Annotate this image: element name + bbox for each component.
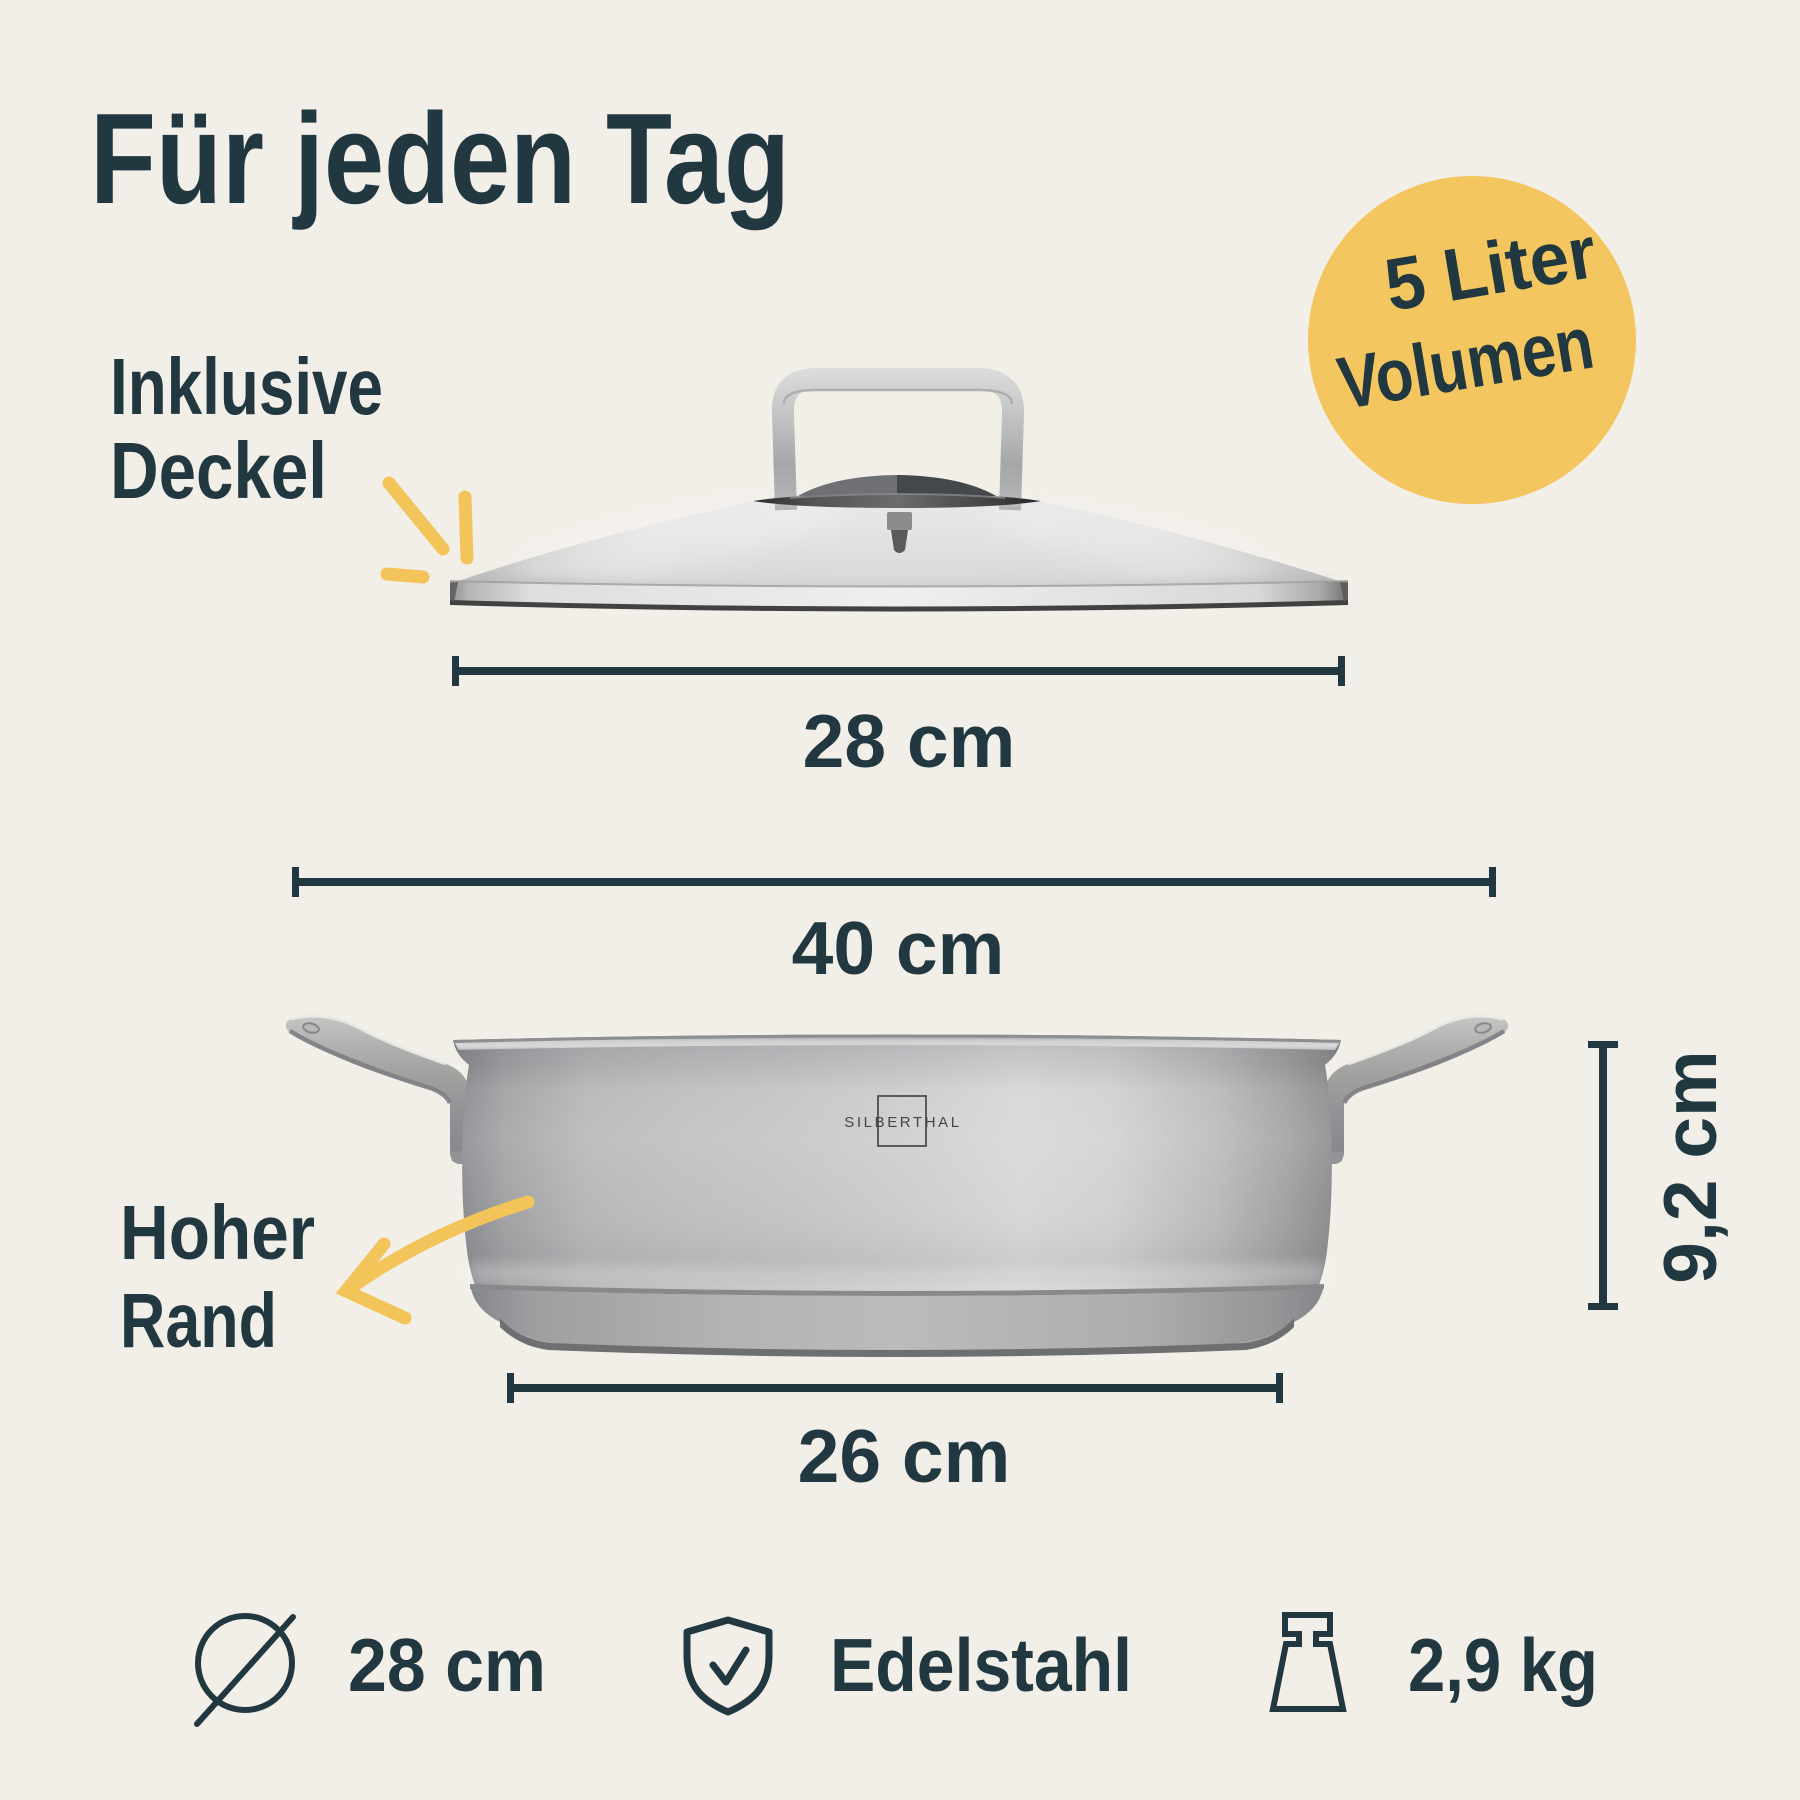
svg-text:28 cm: 28 cm (803, 699, 1016, 783)
svg-text:Edelstahl: Edelstahl (830, 1623, 1132, 1707)
svg-text:Deckel: Deckel (110, 426, 327, 515)
svg-text:Für jeden Tag: Für jeden Tag (90, 87, 790, 231)
svg-text:Inklusive: Inklusive (110, 342, 383, 431)
svg-text:26 cm: 26 cm (798, 1414, 1011, 1498)
svg-text:Hoher: Hoher (120, 1190, 315, 1276)
svg-text:9,2 cm: 9,2 cm (1648, 1050, 1732, 1284)
svg-text:2,9 kg: 2,9 kg (1408, 1623, 1598, 1707)
svg-text:28 cm: 28 cm (348, 1623, 546, 1707)
svg-text:40 cm: 40 cm (792, 906, 1005, 990)
svg-text:Rand: Rand (120, 1278, 277, 1364)
svg-text:SILBERTHAL: SILBERTHAL (844, 1114, 961, 1131)
